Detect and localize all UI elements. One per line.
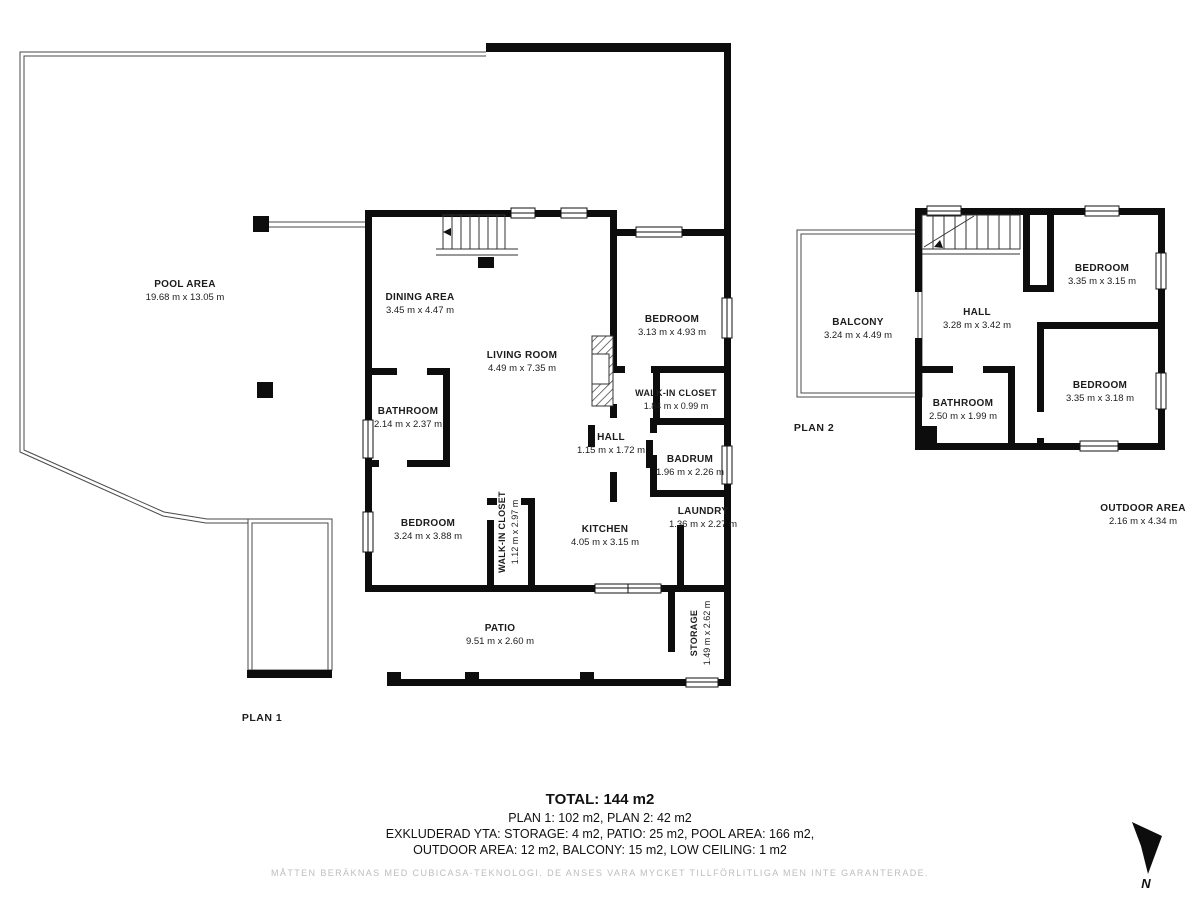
plan1-fireplace (592, 336, 613, 406)
room-label-hall2: HALL (963, 307, 991, 318)
room-label-bedroom-right: BEDROOM (645, 314, 699, 325)
plan2-tag: PLAN 2 (794, 422, 834, 434)
area-summary: TOTAL: 144 m2 PLAN 1: 102 m2, PLAN 2: 42… (0, 792, 1200, 858)
room-label-hall1: HALL (597, 432, 625, 443)
room-label-walkin-right: WALK-IN CLOSET (635, 388, 717, 398)
room-label-laundry: LAUNDRY (678, 506, 729, 517)
room-dims-laundry: 1.36 m x 2.27 m (669, 519, 737, 530)
summary-excluded-1: EXKLUDERAD YTA: STORAGE: 4 m2, PATIO: 25… (0, 826, 1200, 842)
room-label-living: LIVING ROOM (487, 350, 558, 361)
floorplan-drawing: POOL AREA 19.68 m x 13.05 m DINING AREA … (0, 0, 1200, 900)
room-dims-bedroom-left: 3.24 m x 3.88 m (394, 531, 462, 542)
room-label-badrum: BADRUM (667, 454, 713, 465)
summary-excluded-2: OUTDOOR AREA: 12 m2, BALCONY: 15 m2, LOW… (0, 842, 1200, 858)
room-label-bedroom-bot: BEDROOM (1073, 380, 1127, 391)
room-label-patio: PATIO (485, 623, 516, 634)
room-label-outdoor: OUTDOOR AREA (1100, 503, 1185, 514)
disclaimer-text: MÅTTEN BERÄKNAS MED CUBICASA-TEKNOLOGI. … (0, 868, 1200, 878)
room-dims-dining: 3.45 m x 4.47 m (386, 305, 454, 316)
room-label-storage: STORAGE (689, 610, 699, 656)
room-dims-hall1: 1.15 m x 1.72 m (577, 445, 645, 456)
summary-total: TOTAL: 144 m2 (0, 792, 1200, 808)
room-label-kitchen: KITCHEN (582, 524, 629, 535)
summary-plans: PLAN 1: 102 m2, PLAN 2: 42 m2 (0, 810, 1200, 826)
room-label-pool: POOL AREA (154, 279, 216, 290)
plan1-pool-outline (20, 52, 486, 670)
plan1-pool-posts (253, 216, 273, 398)
room-label-dining: DINING AREA (385, 292, 454, 303)
room-dims-kitchen: 4.05 m x 3.15 m (571, 537, 639, 548)
north-label: N (1126, 876, 1166, 891)
room-dims-balcony: 3.24 m x 4.49 m (824, 330, 892, 341)
room-dims-walkin-left: 1.12 m x 2.97 m (510, 500, 520, 565)
room-label-balcony: BALCONY (832, 317, 884, 328)
room-dims-living: 4.49 m x 7.35 m (488, 363, 556, 374)
room-label-walkin-left: WALK-IN CLOSET (497, 491, 507, 573)
room-dims-bathroom1: 2.14 m x 2.37 m (374, 419, 442, 430)
plan1-tag: PLAN 1 (242, 712, 282, 724)
room-dims-bedroom-bot: 3.35 m x 3.18 m (1066, 393, 1134, 404)
room-dims-pool: 19.68 m x 13.05 m (146, 292, 225, 303)
room-dims-hall2: 3.28 m x 3.42 m (943, 320, 1011, 331)
room-label-bedroom-left: BEDROOM (401, 518, 455, 529)
plan1-stairs (436, 215, 518, 268)
room-dims-walkin-right: 1.84 m x 0.99 m (644, 401, 709, 411)
room-label-bathroom1: BATHROOM (378, 406, 439, 417)
plan2-stairs (922, 215, 1020, 254)
room-dims-badrum: 1.96 m x 2.26 m (656, 467, 724, 478)
room-label-bathroom2: BATHROOM (933, 398, 994, 409)
room-dims-bedroom-right: 3.13 m x 4.93 m (638, 327, 706, 338)
room-dims-patio: 9.51 m x 2.60 m (466, 636, 534, 647)
room-label-bedroom-top: BEDROOM (1075, 263, 1129, 274)
plan1-windows (363, 208, 732, 687)
floorplan-page: { "plan1": { "label": "PLAN 1", "rooms":… (0, 0, 1200, 900)
room-dims-storage: 1.49 m x 2.62 m (702, 601, 712, 666)
room-dims-bedroom-top: 3.35 m x 3.15 m (1068, 276, 1136, 287)
room-dims-bathroom2: 2.50 m x 1.99 m (929, 411, 997, 422)
plan2-balcony-outline (797, 230, 922, 397)
room-dims-outdoor: 2.16 m x 4.34 m (1109, 516, 1177, 527)
